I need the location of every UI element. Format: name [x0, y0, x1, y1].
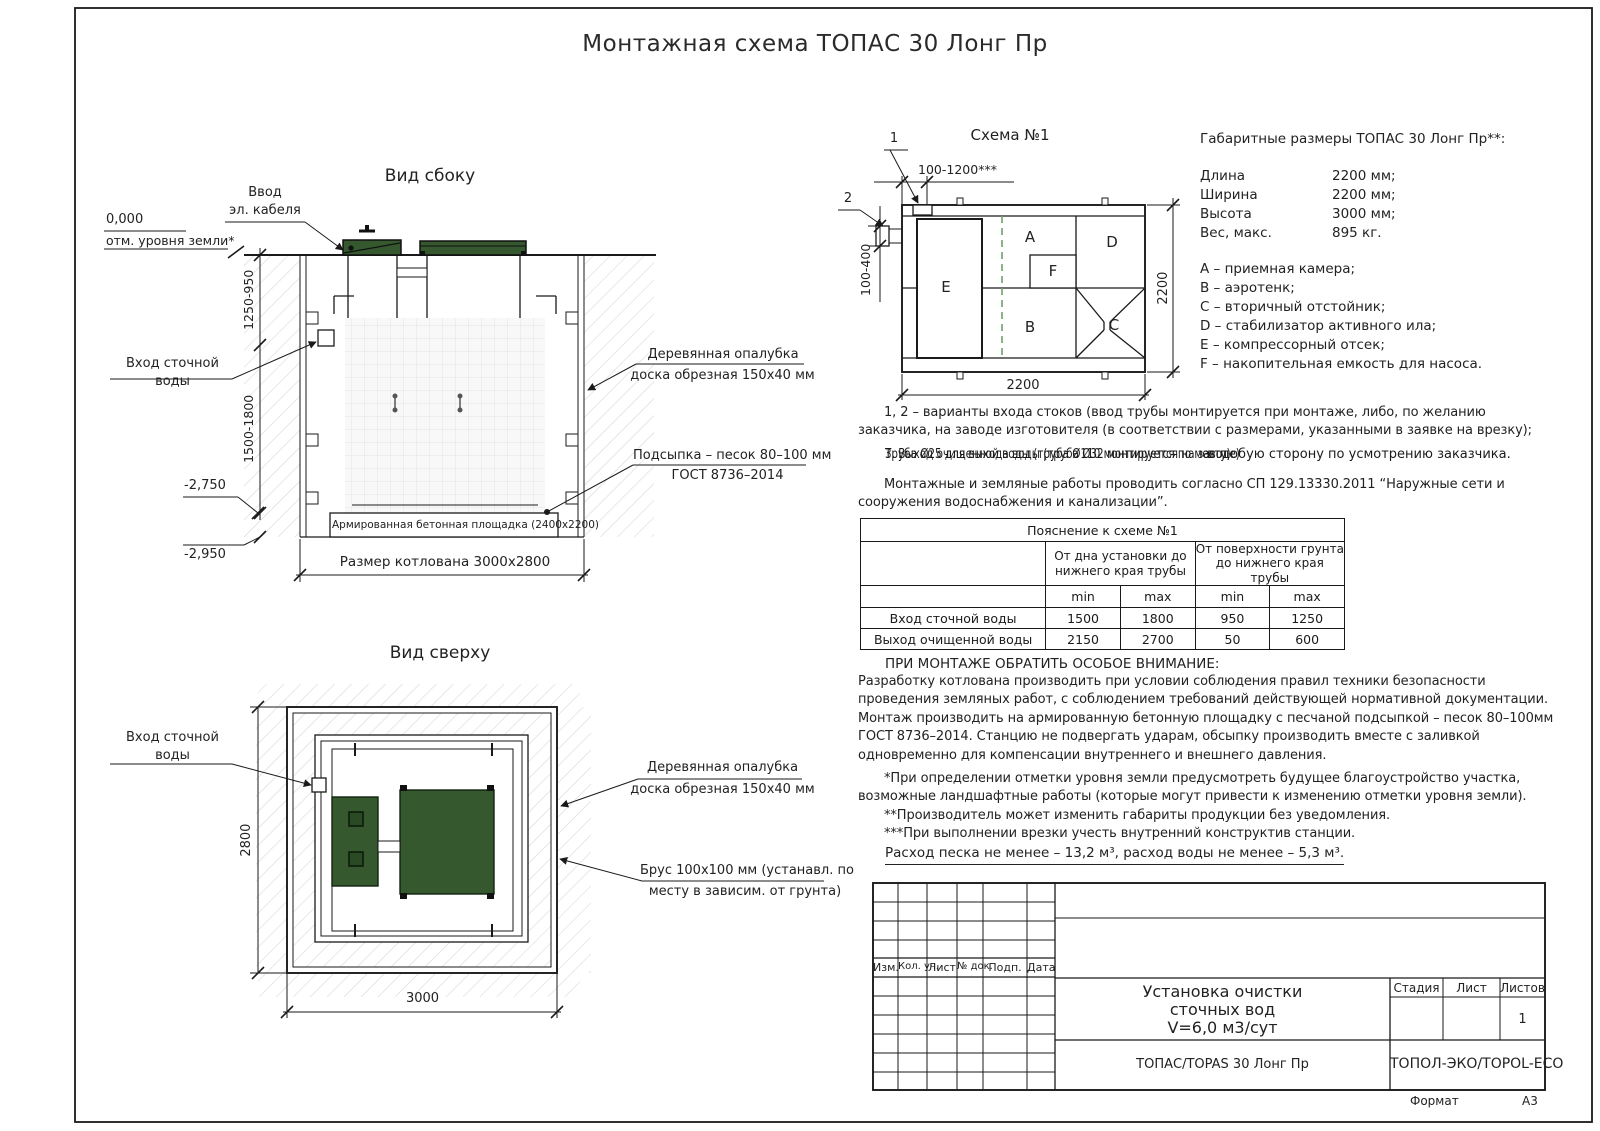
dim-3000: 3000 — [380, 991, 465, 1007]
legend-item: E – компрессорный отсек; — [1200, 337, 1385, 354]
side-view-title: Вид сбоку — [330, 166, 530, 187]
dim-row-name: Вес, макс. — [1200, 225, 1272, 242]
compartment-c-label: C — [1104, 316, 1124, 335]
lid-left — [343, 225, 401, 255]
stamp-header-list: Лист — [927, 961, 957, 975]
stamp-header-podp: Подп. — [983, 961, 1027, 975]
product-name: ТОПАС/TOPAS 30 Лонг Пр — [1055, 1057, 1390, 1073]
dim-row-value: 895 кг. — [1332, 225, 1382, 242]
dim-1250-950: 1250-950 — [241, 255, 257, 345]
compartment-b-label: B — [1020, 318, 1040, 337]
overall-dims-title: Габаритные размеры ТОПАС 30 Лонг Пр**: — [1200, 131, 1505, 148]
dim-2200-bottom: 2200 — [983, 378, 1063, 394]
compartment-a-label: A — [1020, 228, 1040, 247]
overprinted-note: Труба Ø25 для выхода воды (труба Ø32 мон… — [885, 447, 1550, 465]
inlet-stub-side — [318, 330, 334, 346]
legend-item: B – аэротенк; — [1200, 280, 1295, 297]
table-corner-cell — [861, 542, 1045, 585]
legend-item: A – приемная камера; — [1200, 261, 1355, 278]
stage-label: Стадия — [1390, 981, 1443, 996]
dim-1500-1800: 1500-1800 — [241, 384, 257, 474]
compartment-f-label: F — [1043, 262, 1063, 281]
max-header: max — [1120, 586, 1195, 607]
stamp-header-data: Дата — [1027, 961, 1055, 975]
dim-100-1200: 100-1200*** — [900, 162, 1015, 178]
legend-item: D – стабилизатор активного ила; — [1200, 318, 1436, 335]
stamp-header-ndok: № док. — [957, 961, 983, 974]
sheets-label: Листов — [1500, 981, 1545, 996]
consumption-note: Расход песка не менее – 13,2 м³, расход … — [885, 845, 1344, 865]
page-title: Монтажная схема ТОПАС 30 Лонг Пр — [450, 30, 1180, 59]
lid-right — [420, 241, 526, 255]
cable-entry-label: Ввод — [225, 185, 305, 201]
dim-row-name: Ширина — [1200, 187, 1258, 204]
formwork-label-side-2: доска обрезная 150х40 мм — [630, 368, 815, 384]
doc-title-line-1: Установка очистки — [1055, 982, 1390, 1002]
format-label: Формат — [1410, 1094, 1459, 1109]
footnote-2: **Производитель может изменить габариты … — [858, 807, 1555, 825]
formwork-label-top: Деревянная опалубка — [640, 760, 805, 776]
pointer-1-label: 1 — [886, 131, 902, 147]
works-note: Монтажные и земляные работы проводить со… — [858, 476, 1558, 513]
table-row: Вход сточной воды 1500 1800 950 1250 — [861, 607, 1344, 628]
inlet-label-side: Вход сточной — [110, 356, 235, 372]
level-minus-2750: -2,750 — [184, 478, 226, 494]
dim-100-400: 100-400 — [858, 230, 874, 310]
compartment-d-label: D — [1102, 233, 1122, 252]
soil-hatch-right — [584, 255, 654, 537]
top-view-title: Вид сверху — [350, 643, 530, 664]
beam-label: Брус 100х100 мм (устанавл. по — [640, 863, 845, 879]
dim-row-value: 2200 мм; — [1332, 187, 1396, 204]
overprint-line-b: 3. Выход очищенной воды (труба Ø110 монт… — [885, 447, 1231, 462]
dim-2800: 2800 — [239, 800, 255, 880]
pointer-2-label: 2 — [840, 191, 856, 207]
level-minus-2950: -2,950 — [184, 547, 226, 563]
doc-title-line-2: сточных вод — [1055, 1000, 1390, 1020]
dim-row-name: Высота — [1200, 206, 1252, 223]
explanation-table: Пояснение к схеме №1 От дна установки до… — [860, 518, 1345, 650]
footnote-3: ***При выполнении врезки учесть внутренн… — [858, 825, 1555, 843]
drawing-page: Монтажная схема ТОПАС 30 Лонг Пр Вид сбо… — [0, 0, 1600, 1131]
min-header: min — [1195, 586, 1270, 607]
max-header: max — [1269, 586, 1344, 607]
inlet-stub-top — [312, 778, 326, 792]
lid-right-top — [400, 785, 494, 899]
bedding-label-2: ГОСТ 8736–2014 — [655, 468, 800, 484]
attention-heading: ПРИ МОНТАЖЕ ОБРАТИТЬ ОСОБОЕ ВНИМАНИЕ: — [885, 656, 1219, 673]
inlet-variant-1-stub — [913, 205, 932, 215]
dim-2200-right: 2200 — [1156, 248, 1172, 328]
bedding-label: Подсыпка – песок 80–100 мм — [633, 448, 818, 464]
formwork-label-top-2: доска обрезная 150х40 мм — [630, 782, 815, 798]
table-row: Выход очищенной воды 2150 2700 50 600 — [861, 628, 1344, 649]
legend-item: C – вторичный отстойник; — [1200, 299, 1385, 316]
sheet-label: Лист — [1443, 981, 1500, 996]
stamp-header-koluch: Кол. уч. — [898, 961, 927, 974]
schema-title: Схема №1 — [940, 126, 1080, 145]
legend-item: F – накопительная емкость для насоса. — [1200, 356, 1482, 373]
table-group-1: От дна установки до нижнего края трубы — [1045, 542, 1194, 585]
stamp-header-izm: Изм. — [873, 961, 898, 975]
min-header: min — [1045, 586, 1120, 607]
dim-row-name: Длина — [1200, 168, 1245, 185]
table-title: Пояснение к схеме №1 — [861, 519, 1344, 541]
sheets-value: 1 — [1500, 1012, 1545, 1028]
concrete-pad-label: Армированная бетонная площадка (2400х220… — [332, 519, 556, 532]
doc-title-line-3: V=6,0 м3/сут — [1055, 1018, 1390, 1038]
table-group-2: От поверхности грунта до нижнего края тр… — [1195, 542, 1344, 585]
pit-size-label: Размер котлована 3000х2800 — [330, 554, 560, 571]
ground-level-label: отм. уровня земли* — [106, 233, 234, 249]
overprint-tail: в любую сторону по усмотрению заказчика. — [1207, 447, 1511, 462]
company-name: ТОПОЛ-ЭКО/TOPOL-ECO — [1390, 1056, 1545, 1074]
inlet-label-top-2: воды — [110, 748, 235, 764]
footnote-1: *При определении отметки уровня земли пр… — [858, 770, 1555, 807]
inlet-label-side-2: воды — [110, 374, 235, 390]
dim-row-value: 3000 мм; — [1332, 206, 1396, 223]
compartment-e-label: E — [936, 278, 956, 297]
beam-label-2: месту в зависим. от грунта) — [645, 884, 845, 900]
cable-entry-label-2: эл. кабеля — [210, 203, 320, 219]
zero-level-label: 0,000 — [106, 212, 143, 228]
inlet-variants-note: 1, 2 – варианты входа стоков (ввод трубы… — [858, 404, 1558, 441]
lid-left-top — [332, 797, 378, 886]
attention-body: Разработку котлована производить при усл… — [858, 673, 1555, 765]
schema-linework — [838, 150, 1180, 401]
inlet-label-top: Вход сточной — [110, 730, 235, 746]
formwork-label-side: Деревянная опалубка — [638, 347, 808, 363]
tank-body-texture — [345, 318, 545, 513]
dim-row-value: 2200 мм; — [1332, 168, 1396, 185]
format-value: А3 — [1522, 1094, 1538, 1109]
